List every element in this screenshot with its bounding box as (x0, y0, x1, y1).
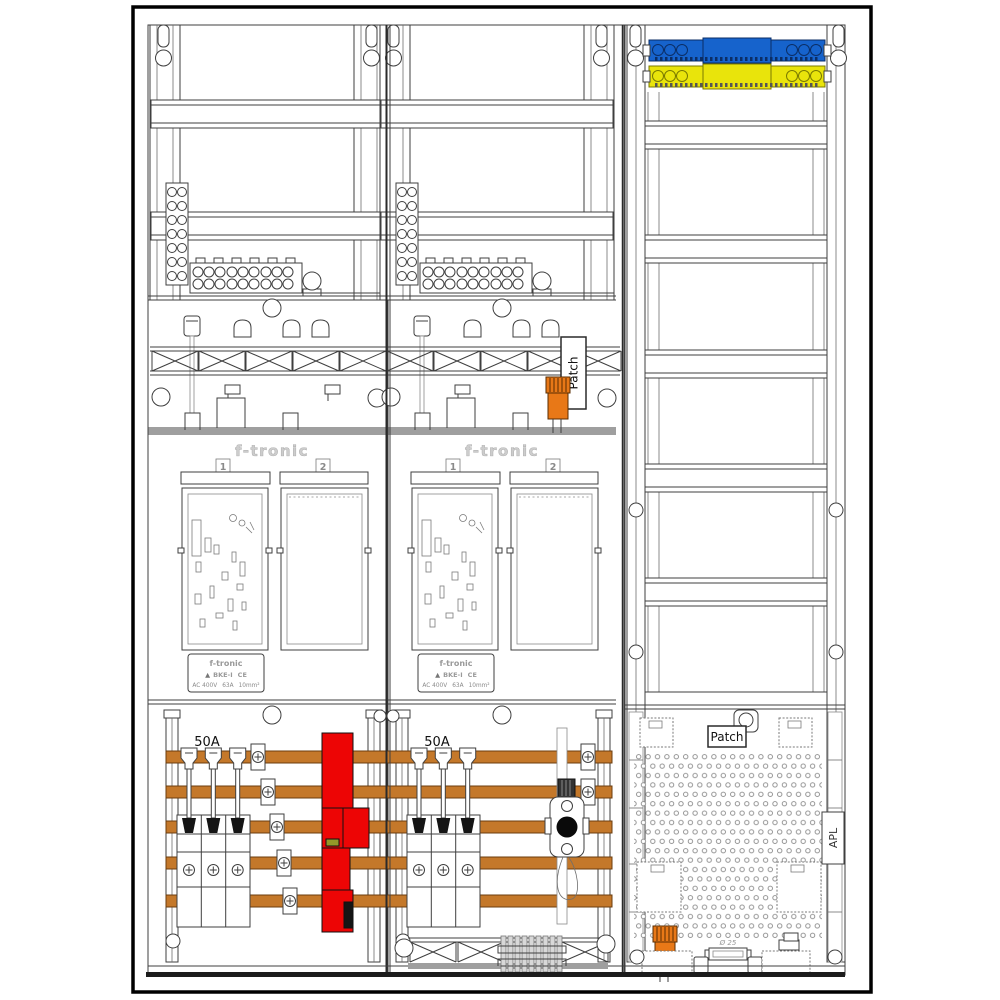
fuse-block-field-1 (177, 748, 250, 927)
plate-brand-field-2: f-tronic (439, 659, 472, 668)
seal-hole (557, 817, 578, 838)
plate-ratings-field-1: AC 400V63A10mm² (192, 682, 259, 689)
perforated-plate (634, 752, 822, 942)
breaker-rating-field-1: 50A (194, 735, 220, 750)
mounting-pad-top-left (640, 718, 673, 747)
meter-cabinet-drawing: Patch Patch (0, 0, 1000, 1000)
neutral-terminal-bar (649, 38, 825, 63)
apl-compartment: Patch APL Ø 25 (625, 705, 845, 982)
vde-triangle-icon: ▲ (435, 671, 440, 679)
apl-label: APL (822, 812, 844, 864)
sls-indicator (326, 839, 339, 846)
cable-connector (558, 779, 575, 797)
sls-handle-slot (344, 902, 353, 928)
field-number-2-1: 1 (450, 462, 457, 473)
mounting-pad-top-right (779, 718, 812, 747)
mounting-pad-bottom-right (777, 862, 821, 912)
brand-logo-field-1: f-tronic (235, 442, 309, 460)
cabinet-svg: Patch Patch (0, 0, 1000, 1000)
fuse-block-field-2 (407, 748, 480, 927)
plate-brand-field-1: f-tronic (209, 659, 242, 668)
apl-text: APL (827, 827, 840, 848)
breaker-rating-field-2: 50A (424, 735, 450, 750)
field-number-1-1: 1 (220, 462, 227, 473)
patch-label-right-panel: Patch (708, 726, 746, 747)
pe-terminal-bar (649, 64, 825, 89)
brand-logo-field-2: f-tronic (465, 442, 539, 460)
knockout-diameter-text: Ø 25 (719, 939, 737, 947)
field-number-2-2: 2 (550, 462, 557, 473)
mounting-pad-bottom-left (637, 862, 681, 912)
vde-triangle-icon: ▲ (205, 671, 210, 679)
patch-right-text: Patch (711, 730, 744, 744)
plate-ratings-field-2: AC 400V63A10mm² (422, 682, 489, 689)
field-number-1-2: 2 (320, 462, 327, 473)
